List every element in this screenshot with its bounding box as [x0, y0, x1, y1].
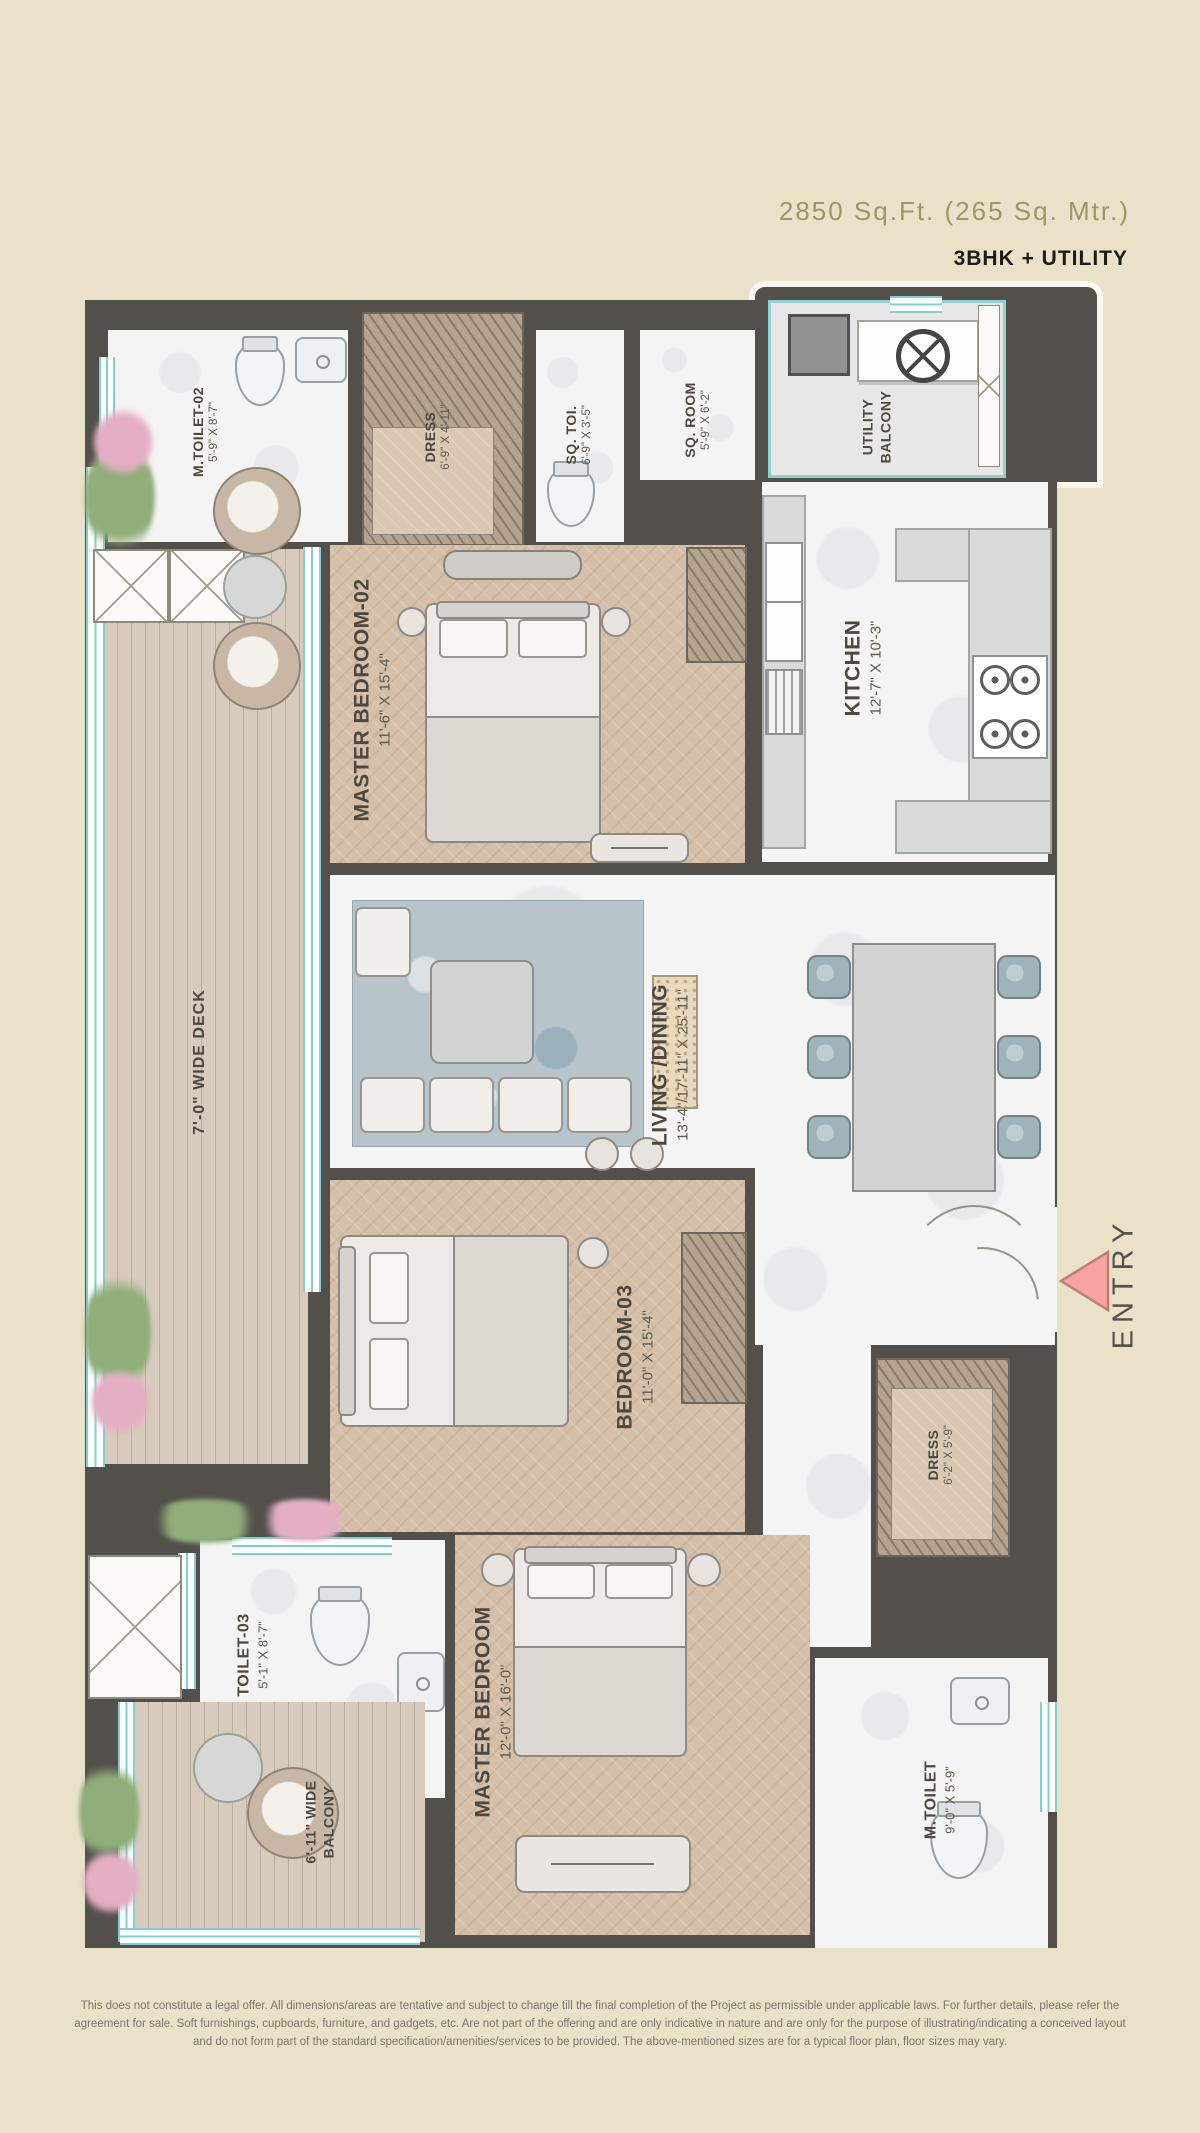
hob-stove	[972, 655, 1048, 759]
dining-chair	[807, 1035, 851, 1079]
pillow	[605, 1564, 674, 1599]
lounge-chair	[213, 467, 301, 555]
plant	[91, 1367, 149, 1437]
kitchen-sink	[765, 669, 803, 735]
entry-arrow-icon	[1056, 1249, 1112, 1313]
burner-icon	[1010, 719, 1040, 749]
pillow	[527, 1564, 596, 1599]
dresser	[590, 833, 689, 863]
floor-plan-page: { "header": { "area": "2850 Sq.Ft. (265 …	[0, 0, 1200, 2133]
balcony-railing	[120, 1928, 420, 1945]
floor-plan: M.TOILET-025'-9" X 8'-7" DRESS6'-9" X 4'…	[85, 287, 1060, 1948]
disclaimer-text: This does not constitute a legal offer. …	[70, 1998, 1130, 2051]
sofa	[360, 1077, 632, 1133]
bed	[340, 1235, 569, 1427]
side-table	[397, 607, 427, 637]
sink-fixture	[950, 1677, 1010, 1725]
blanket	[425, 716, 601, 843]
pillow	[518, 619, 587, 658]
headboard	[436, 601, 591, 619]
side-table	[601, 607, 631, 637]
dresser	[515, 1835, 691, 1893]
headboard	[524, 1546, 677, 1564]
armchair	[355, 907, 411, 977]
plant	[93, 407, 153, 477]
kitchen-counter-bottom	[895, 800, 1052, 854]
area-text: 2850 Sq.Ft. (265 Sq. Mtr.)	[779, 196, 1130, 227]
coffee-table	[430, 960, 534, 1064]
lounge-chair	[213, 622, 301, 710]
wardrobe	[681, 1232, 747, 1404]
washing-machine	[788, 314, 850, 376]
wardrobe	[686, 547, 747, 663]
side-table	[481, 1553, 515, 1587]
tv-console	[443, 550, 582, 580]
service-shaft	[93, 549, 169, 623]
burner-icon	[1010, 665, 1040, 695]
lift-shaft	[88, 1555, 182, 1699]
plant	[83, 1847, 139, 1917]
sink-fixture	[295, 337, 347, 383]
pillow	[439, 619, 508, 658]
dining-chair	[997, 1035, 1041, 1079]
fan-icon	[896, 329, 950, 383]
m-toilet-window	[1040, 1702, 1057, 1812]
dining-chair	[807, 1115, 851, 1159]
kitchen-window	[890, 296, 942, 313]
plant	[145, 1499, 265, 1543]
burner-icon	[980, 719, 1010, 749]
deck-sliding-window	[303, 547, 321, 1292]
blanket	[453, 1235, 570, 1427]
bed	[425, 603, 601, 843]
dining-chair	[997, 1115, 1041, 1159]
side-table	[687, 1553, 721, 1587]
config-text: 3BHK + UTILITY	[954, 247, 1128, 271]
side-table	[577, 1237, 609, 1269]
round-table	[223, 555, 287, 619]
headboard	[338, 1246, 356, 1415]
pillow	[369, 1338, 409, 1410]
plant	[255, 1499, 355, 1541]
dining-table	[852, 943, 996, 1192]
dryer-unit	[857, 320, 979, 382]
burner-icon	[980, 665, 1010, 695]
pouf	[585, 1137, 619, 1171]
blanket	[513, 1646, 687, 1757]
dining-chair	[997, 955, 1041, 999]
bed	[513, 1548, 687, 1757]
duct-shaft	[978, 305, 1000, 467]
refrigerator	[765, 542, 803, 662]
dining-chair	[807, 955, 851, 999]
pillow	[369, 1252, 409, 1324]
